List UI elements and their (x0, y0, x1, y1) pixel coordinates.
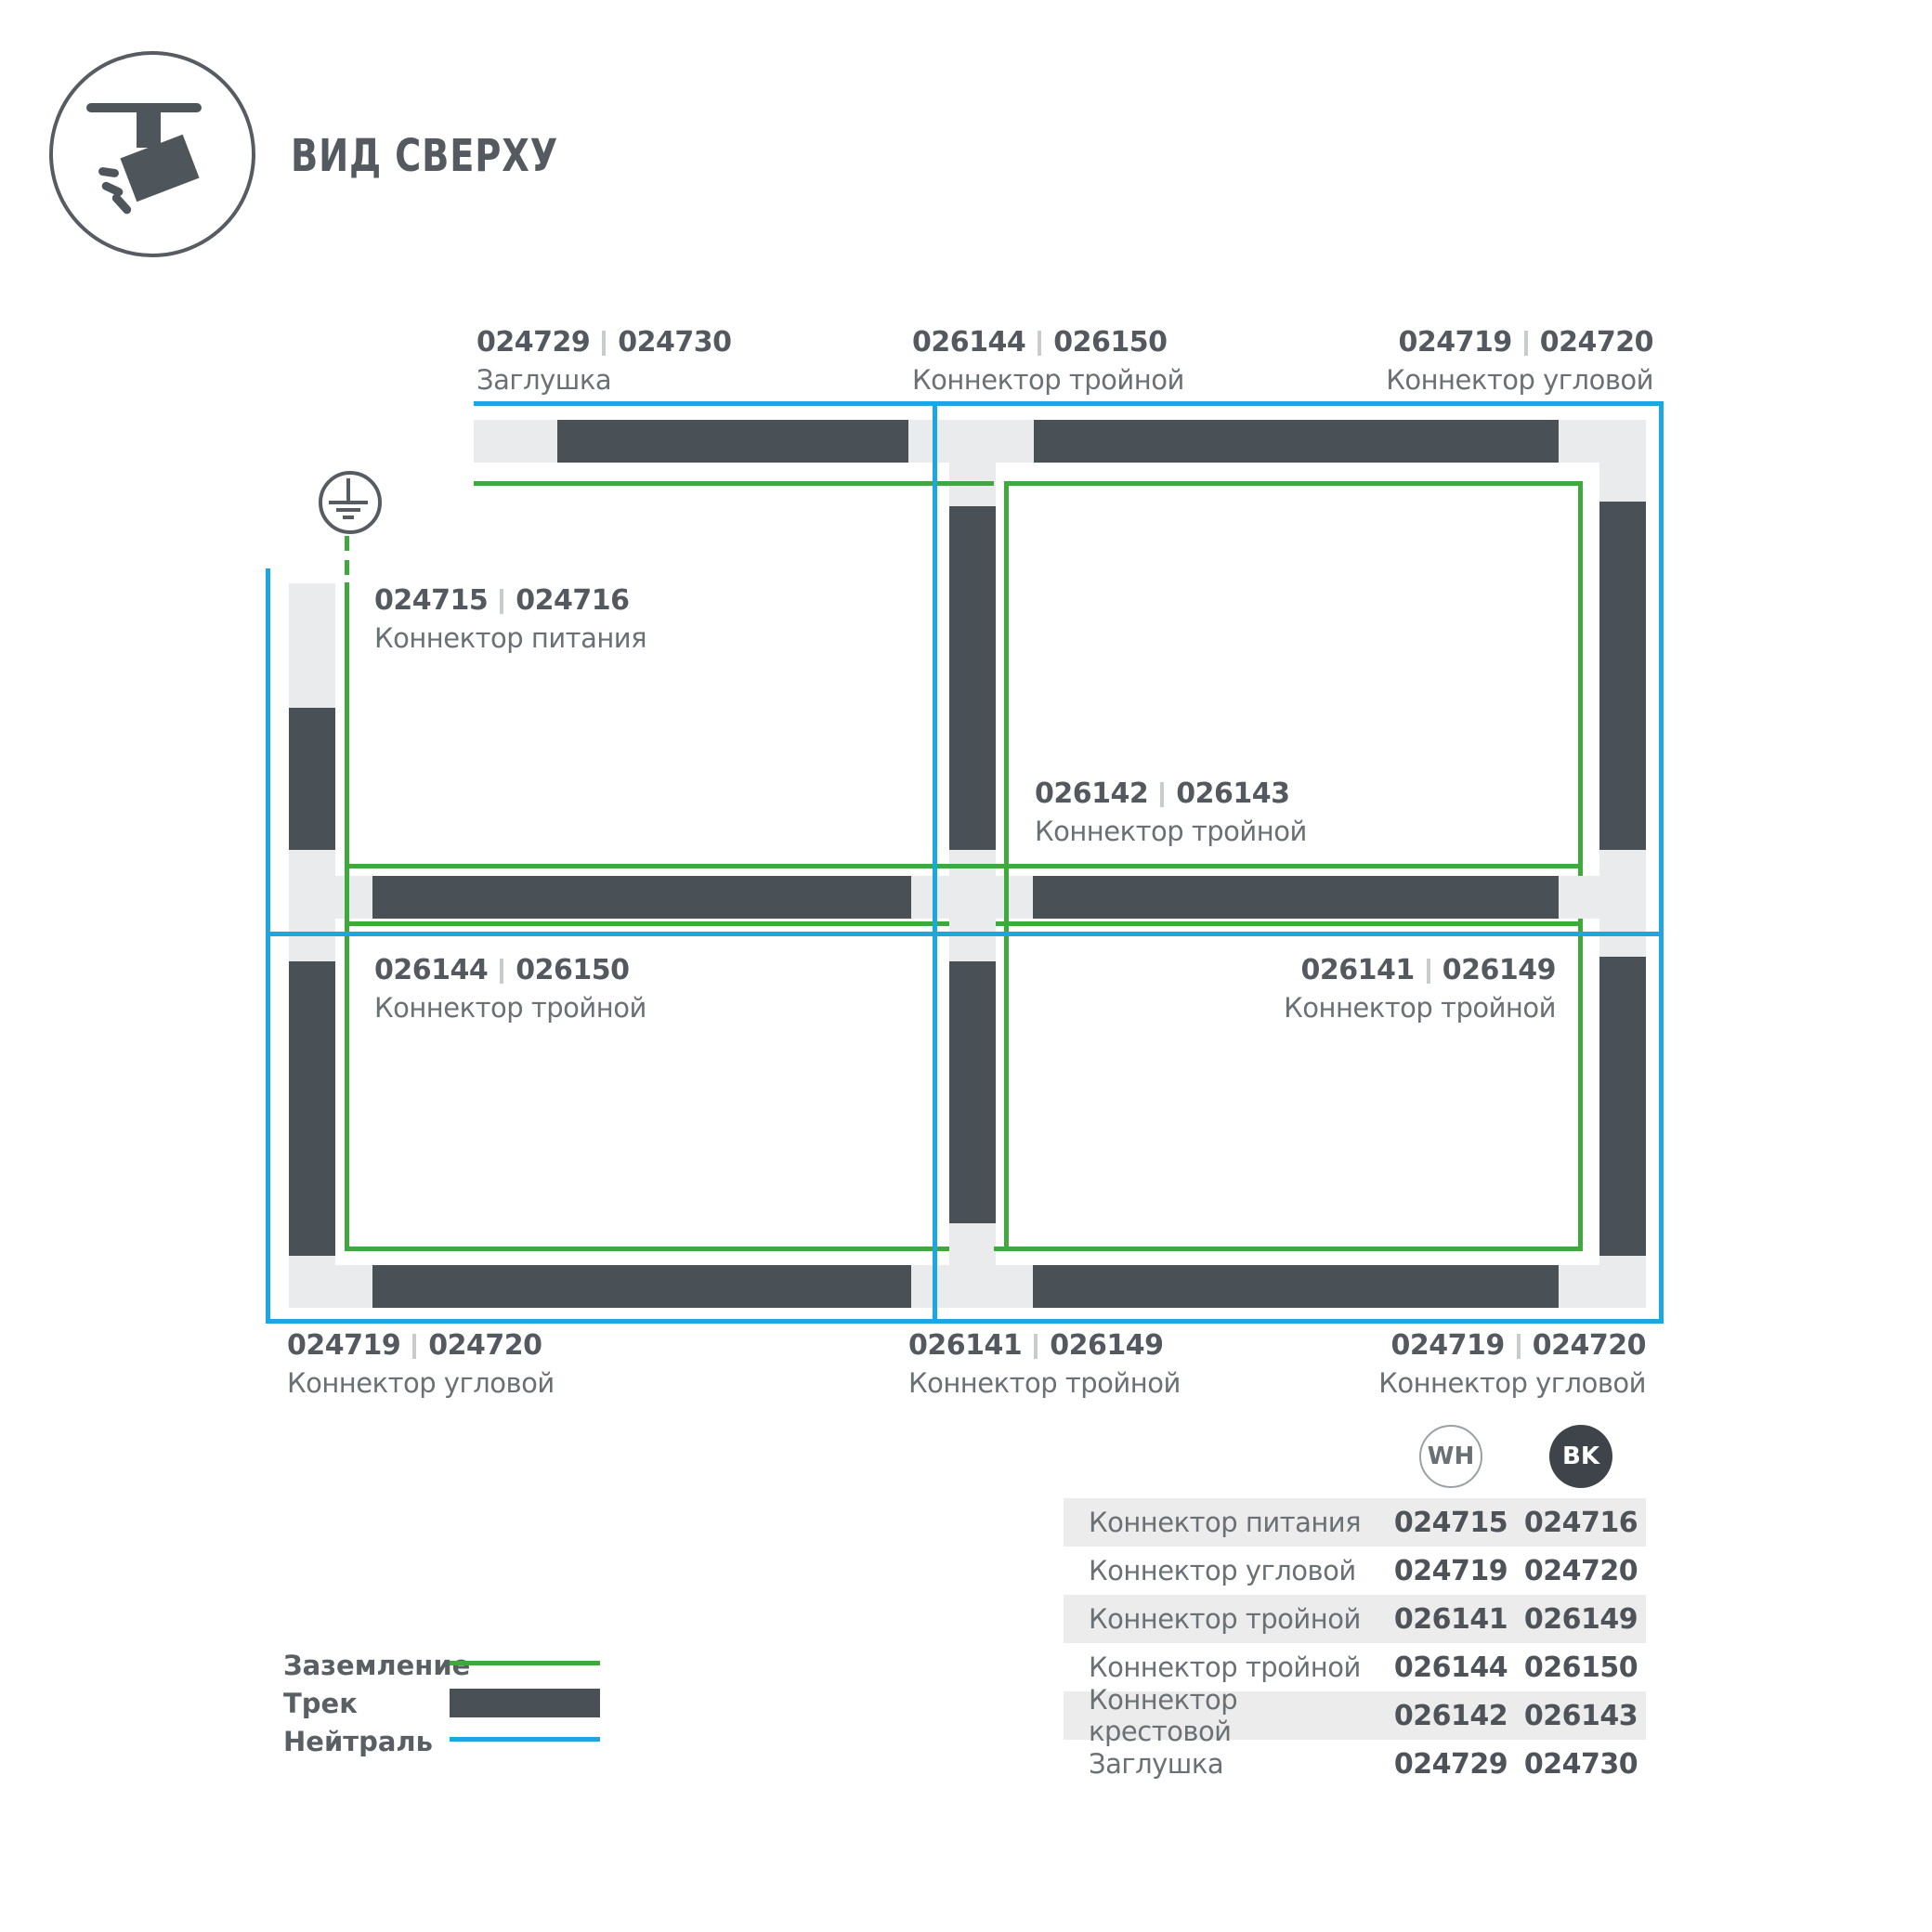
page-title: ВИД СВЕРХУ (291, 130, 558, 182)
row-name: Коннектор угловой (1064, 1555, 1386, 1586)
ground-line (1578, 481, 1583, 876)
code-bk: 026150 (1053, 327, 1167, 359)
track-segment (1033, 876, 1559, 919)
table-row: Коннектор крестовой 026142 026143 (1064, 1691, 1646, 1740)
part-name: Коннектор угловой (1386, 365, 1653, 396)
code-separator (500, 589, 503, 614)
part-name: Коннектор угловой (287, 1368, 555, 1399)
code-wh: 024715 (374, 585, 488, 617)
row-name: Коннектор крестовой (1064, 1684, 1386, 1747)
neutral-line (266, 1319, 1664, 1324)
track-segment (372, 876, 911, 919)
track-segment (1599, 502, 1646, 850)
track-segment (289, 961, 335, 1256)
label-power-connector: 024715 024716 Коннектор питания (374, 585, 646, 654)
label-cross-connector-center: 026142 026143 Коннектор тройной (1035, 778, 1307, 847)
code-wh: 024729 (476, 327, 590, 359)
table-row: Коннектор тройной 026141 026149 (1064, 1595, 1646, 1643)
track-segment (949, 961, 996, 1223)
color-badge-white: WH (1419, 1425, 1482, 1488)
part-name: Коннектор тройной (908, 1368, 1181, 1399)
page: ВИД СВЕРХУ (0, 0, 1932, 1932)
code-separator (1517, 1334, 1521, 1359)
legend-ground-swatch (450, 1661, 600, 1665)
row-name: Коннектор тройной (1064, 1603, 1386, 1635)
part-codes: 026141 026149 (1284, 955, 1556, 986)
neutral-line (933, 401, 937, 1324)
color-badge-black: BK (1549, 1425, 1612, 1488)
code-separator (602, 331, 606, 356)
code-separator (500, 959, 503, 984)
legend-neutral-swatch (450, 1737, 600, 1742)
ground-line (1004, 481, 1009, 1250)
part-codes: 026141 026149 (908, 1330, 1181, 1362)
label-tee-connector-top: 026144 026150 Коннектор тройной (912, 327, 1184, 396)
part-name: Заглушка (476, 365, 732, 396)
code-wh: 024719 (1399, 327, 1512, 359)
code-bk: 024730 (618, 327, 731, 359)
code-wh: 026141 (1301, 955, 1415, 986)
row-bk-code: 026150 (1516, 1651, 1646, 1684)
row-name: Коннектор питания (1064, 1507, 1386, 1538)
label-tee-connector-bottom: 026141 026149 Коннектор тройной (908, 1330, 1181, 1399)
row-bk-code: 024730 (1516, 1748, 1646, 1781)
part-name: Коннектор тройной (1035, 816, 1307, 847)
part-codes: 026144 026150 (912, 327, 1184, 359)
neutral-line (1659, 401, 1664, 1324)
row-wh-code: 026144 (1386, 1651, 1516, 1684)
ground-line (345, 921, 949, 926)
track-segment (289, 708, 335, 850)
row-bk-code: 024720 (1516, 1555, 1646, 1587)
row-bk-code: 024716 (1516, 1507, 1646, 1539)
code-separator (1427, 959, 1430, 984)
neutral-line (474, 401, 1664, 406)
spotlight-stem-icon-part (137, 111, 161, 148)
code-separator (1038, 331, 1041, 356)
label-tee-connector-middle-right: 026141 026149 Коннектор тройной (1284, 955, 1556, 1024)
ground-line (1006, 481, 1583, 486)
part-name: Коннектор тройной (374, 993, 646, 1024)
code-bk: 024720 (1533, 1330, 1646, 1362)
light-ray-icon (111, 192, 133, 215)
label-corner-connector-bottom-left: 024719 024720 Коннектор угловой (287, 1330, 555, 1399)
code-separator (1524, 331, 1528, 356)
code-bk: 026143 (1176, 778, 1289, 810)
label-corner-connector-bottom-right: 024719 024720 Коннектор угловой (1378, 1330, 1646, 1399)
label-corner-connector-top-right: 024719 024720 Коннектор угловой (1386, 327, 1653, 396)
row-bk-code: 026143 (1516, 1700, 1646, 1732)
row-name: Заглушка (1064, 1748, 1386, 1780)
ground-line (994, 1247, 1583, 1251)
ground-line (1578, 919, 1583, 1250)
label-tee-connector-middle-left: 026144 026150 Коннектор тройной (374, 955, 646, 1024)
ground-line (345, 864, 1583, 868)
legend-label-ground: Заземление (283, 1650, 470, 1681)
table-row: Коннектор питания 024715 024716 (1064, 1498, 1646, 1547)
track-segment (557, 420, 908, 463)
parts-table: Коннектор питания 024715 024716 Коннекто… (1064, 1498, 1646, 1788)
track-segment (1034, 420, 1559, 463)
code-wh: 026141 (908, 1330, 1022, 1362)
earth-ground-icon-part (343, 516, 354, 519)
track-segment (1033, 1265, 1559, 1308)
code-wh: 026144 (374, 955, 488, 986)
code-bk: 024720 (428, 1330, 542, 1362)
ground-line (345, 1247, 949, 1251)
code-bk: 026149 (1442, 955, 1556, 986)
row-wh-code: 024715 (1386, 1507, 1516, 1539)
part-name: Коннектор тройной (912, 365, 1184, 396)
neutral-line (266, 932, 1664, 936)
track-segment (1599, 957, 1646, 1256)
label-end-cap-top: 024729 024730 Заглушка (476, 327, 732, 396)
part-codes: 024715 024716 (374, 585, 646, 617)
table-row: Коннектор угловой 024719 024720 (1064, 1547, 1646, 1595)
code-separator (1034, 1334, 1038, 1359)
light-ray-icon (98, 167, 119, 178)
earth-ground-icon-part (346, 478, 350, 503)
row-name: Коннектор тройной (1064, 1651, 1386, 1683)
track-segment (949, 506, 996, 850)
ground-line (345, 582, 349, 1250)
code-wh: 026142 (1035, 778, 1148, 810)
earth-ground-icon-part (329, 501, 368, 504)
code-separator (412, 1334, 416, 1359)
code-bk: 024716 (516, 585, 629, 617)
ground-line (996, 921, 1583, 926)
code-bk: 026150 (516, 955, 629, 986)
part-name: Коннектор угловой (1378, 1368, 1646, 1399)
part-codes: 024719 024720 (287, 1330, 555, 1362)
code-wh: 024719 (1391, 1330, 1505, 1362)
part-codes: 024719 024720 (1378, 1330, 1646, 1362)
spotlight-head-icon-part (120, 135, 199, 202)
part-name: Коннектор тройной (1284, 993, 1556, 1024)
part-codes: 024719 024720 (1386, 327, 1653, 359)
legend-track-swatch (450, 1689, 600, 1717)
neutral-line (266, 568, 270, 1324)
track-segment (372, 1265, 911, 1308)
part-name: Коннектор питания (374, 623, 646, 654)
row-wh-code: 024719 (1386, 1555, 1516, 1587)
code-wh: 024719 (287, 1330, 400, 1362)
earth-ground-icon (319, 471, 382, 534)
row-bk-code: 026149 (1516, 1603, 1646, 1636)
part-codes: 026142 026143 (1035, 778, 1307, 810)
code-separator (1160, 782, 1164, 807)
row-wh-code: 026142 (1386, 1700, 1516, 1732)
ground-line-dashed (345, 536, 349, 582)
ground-line (474, 481, 994, 486)
legend-label-neutral: Нейтраль (283, 1726, 433, 1757)
part-codes: 026144 026150 (374, 955, 646, 986)
track-spotlight-icon (49, 51, 255, 257)
part-codes: 024729 024730 (476, 327, 732, 359)
code-bk: 024720 (1540, 327, 1653, 359)
code-bk: 026149 (1050, 1330, 1163, 1362)
row-wh-code: 024729 (1386, 1748, 1516, 1781)
row-wh-code: 026141 (1386, 1603, 1516, 1636)
code-wh: 026144 (912, 327, 1025, 359)
earth-ground-icon-part (336, 508, 360, 512)
legend-label-track: Трек (283, 1688, 358, 1719)
